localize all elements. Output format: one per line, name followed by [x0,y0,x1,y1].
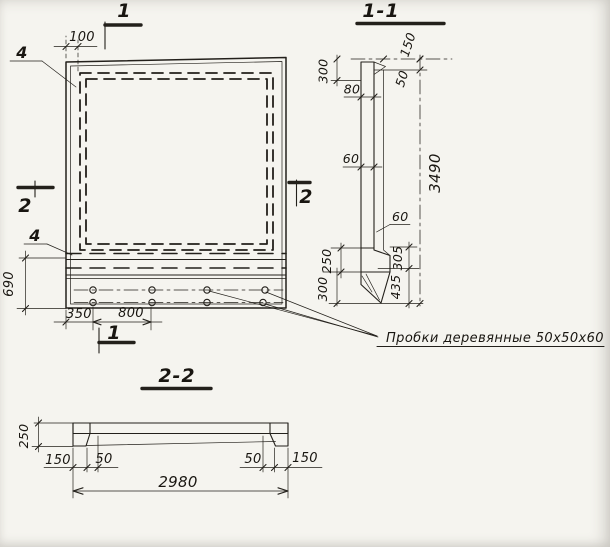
dim-top-ledge-value: 300 [316,59,331,84]
slab-section [73,423,288,434]
dim-total-height: 3490 [417,56,444,307]
right-rib [270,423,288,446]
drawing-sheet: 100 1 1 2 2 4 [0,0,610,547]
section-mark-2-left-label: 2 [18,195,32,217]
section-1-1-title: 1-1 [362,0,399,22]
dim-axis-offset-value: 150 [397,31,419,59]
plug-note: Пробки деревянные 50х50х60 [377,331,604,347]
dim-ledge-width-value: 80 [344,82,361,97]
dim-base-height: 690 [2,251,66,315]
plug-leaders [209,291,378,337]
section-view-2-2: 2-2 250 150 50 [16,365,322,498]
dim-panel-thickness-value: 60 [343,151,360,166]
plug-note-text: Пробки деревянные 50х50х60 [386,331,604,346]
dim-edge-to-plug-value: 350 [66,307,92,322]
hidden-frame-inner [86,79,267,244]
dim-ledge-width: 80 [344,82,381,101]
dim-thickness: 250 [16,417,73,452]
callout-4-top-label: 4 [15,43,27,62]
section-mark-1-top: 1 [105,0,141,49]
dim-base-left: 250 300 [315,243,361,307]
dim-total-height-value: 3490 [426,153,444,192]
dim-left-rib-value: 50 [95,452,112,467]
section-mark-1-bottom-label: 1 [107,322,121,344]
dim-total-width-value: 2980 [158,473,197,491]
dim-right-edge-value: 150 [292,451,318,466]
dim-right-rib-value: 50 [244,452,261,467]
dim-mesh-offset: 100 [54,30,97,71]
panel-outline [66,58,286,309]
section-mark-2-left: 2 [18,181,53,217]
dim-right-lower-value: 435 [388,275,403,300]
dim-panel-thickness: 60 [343,151,382,170]
wall-section [361,62,374,248]
technical-drawing: 100 1 1 2 2 4 [0,0,610,547]
section-mark-1-top-label: 1 [117,0,131,22]
hidden-frame-outer [80,73,273,250]
dim-base-right: 305 435 [378,242,419,308]
dim-right-upper-value: 305 [390,246,405,271]
dim-top-drop-value: 50 [392,68,411,88]
dim-total-width: 2980 [73,473,288,494]
callout-4-bottom-label: 4 [28,226,40,245]
dim-plug-spacing-value: 800 [118,306,144,321]
dim-base-lower-value: 300 [315,277,330,302]
callout-4-bottom: 4 [24,226,72,255]
dim-base-upper-value: 250 [319,249,334,274]
section-view-1-1: 1-1 300 80 [315,0,452,308]
left-rib [73,423,90,446]
dim-left-edge-value: 150 [45,453,71,468]
dim-mesh-offset-value: 100 [69,30,95,45]
dim-base-height-value: 690 [2,271,17,297]
section-mark-1-bottom: 1 [99,322,134,353]
section-mark-2-right-label: 2 [299,186,313,208]
dim-thickness-value: 250 [16,424,31,449]
dim-axis-offset: 150 [381,31,424,62]
section-mark-2-right: 2 [289,180,313,208]
base-shoe [361,272,390,303]
dim-rib-width-value: 60 [392,209,409,224]
section-2-2-title: 2-2 [158,365,195,387]
dim-rib-width: 60 [377,209,411,232]
